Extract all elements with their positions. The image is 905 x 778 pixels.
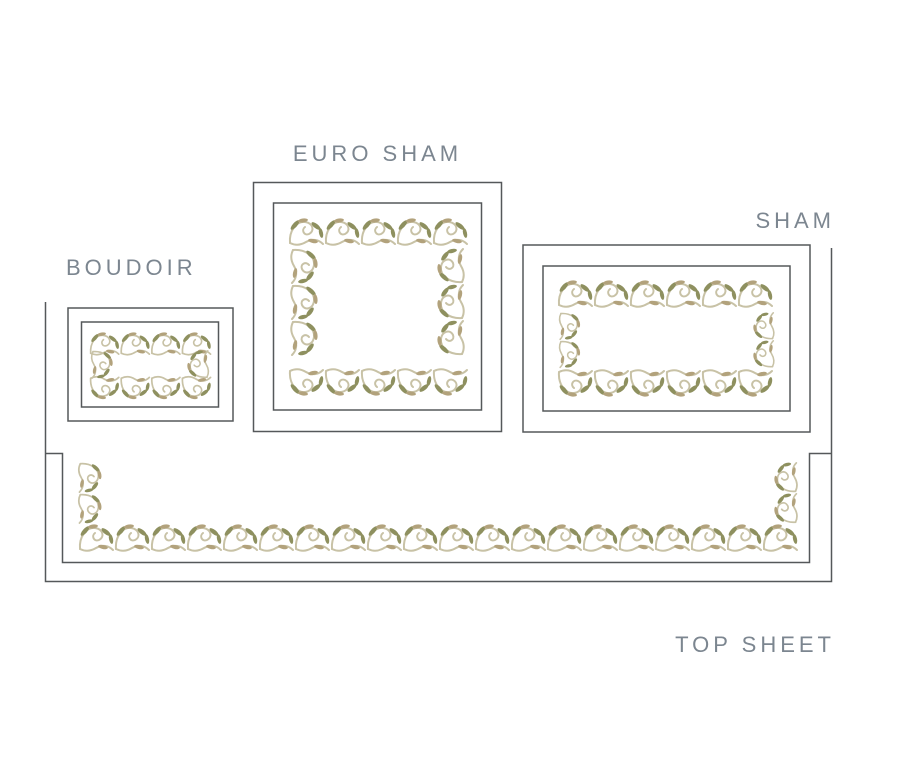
boudoir-box (68, 308, 233, 421)
bedding-embroidery-placement-diagram: EURO SHAM SHAM BOUDOIR TOP SHEET (0, 0, 905, 778)
diagram-canvas (0, 0, 905, 778)
top-sheet-embroidery-border (79, 462, 798, 551)
